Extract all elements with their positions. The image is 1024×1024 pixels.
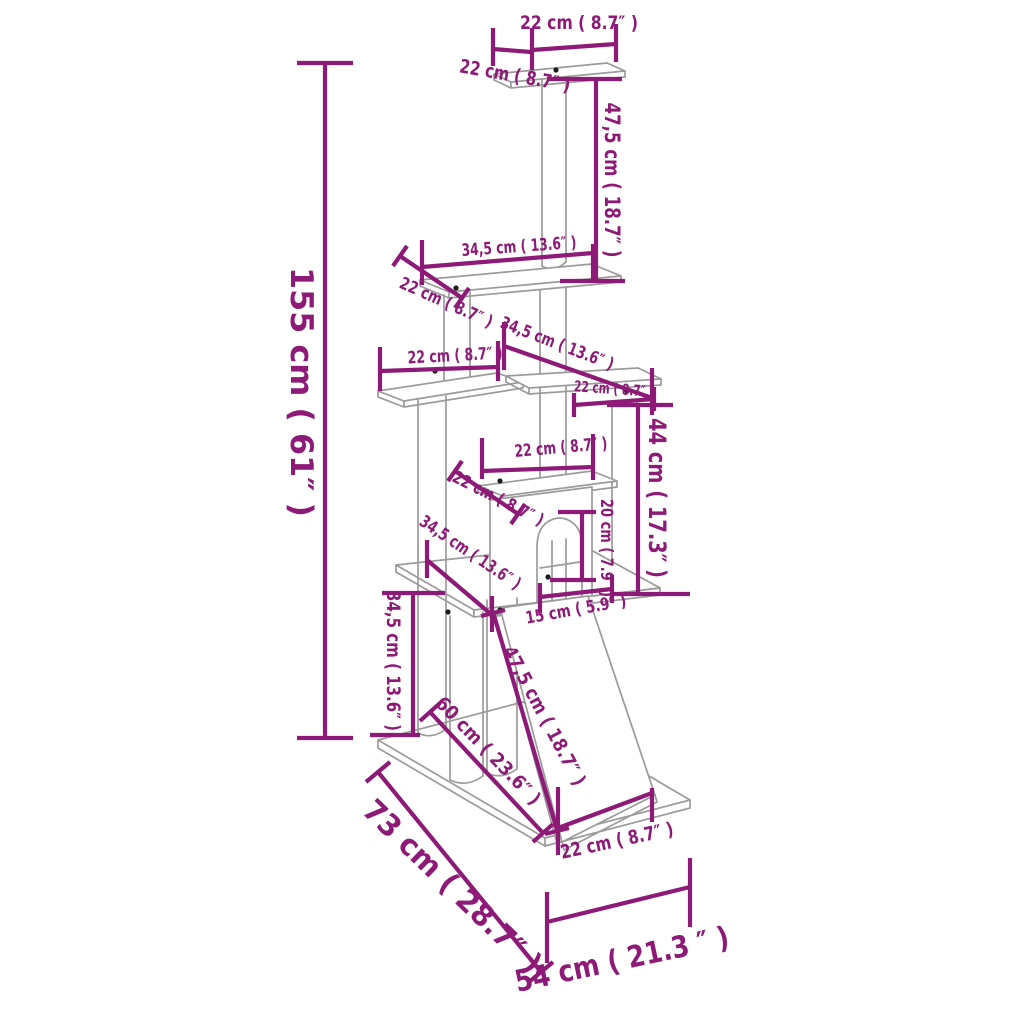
dim-top-post-height-label: 47,5 cm ( 18.7″ ) xyxy=(600,103,624,258)
dim-overall-height-label: 155 cm ( 61″ ) xyxy=(283,267,319,517)
dim-mid-level-height-label: 44 cm ( 17.3″ ) xyxy=(643,418,671,578)
diagram-page: 155 cm ( 61″ ) 22 cm ( 8.7″ ) 22 cm ( 8.… xyxy=(0,0,1024,1024)
cat-tree-dimension-diagram: 155 cm ( 61″ ) 22 cm ( 8.7″ ) 22 cm ( 8.… xyxy=(0,0,1024,1024)
connector-dot xyxy=(497,478,502,483)
connector-dot xyxy=(545,574,550,579)
connector-dot xyxy=(453,285,458,290)
connector-dot xyxy=(445,609,450,614)
dim-base-clearance-height-label: 34,5 cm ( 13.6″ ) xyxy=(382,591,404,731)
dim-top-platform-width-label: 22 cm ( 8.7″ ) xyxy=(520,12,638,34)
dim-door-height-label: 20 cm ( 7.9″ ) xyxy=(596,499,616,597)
